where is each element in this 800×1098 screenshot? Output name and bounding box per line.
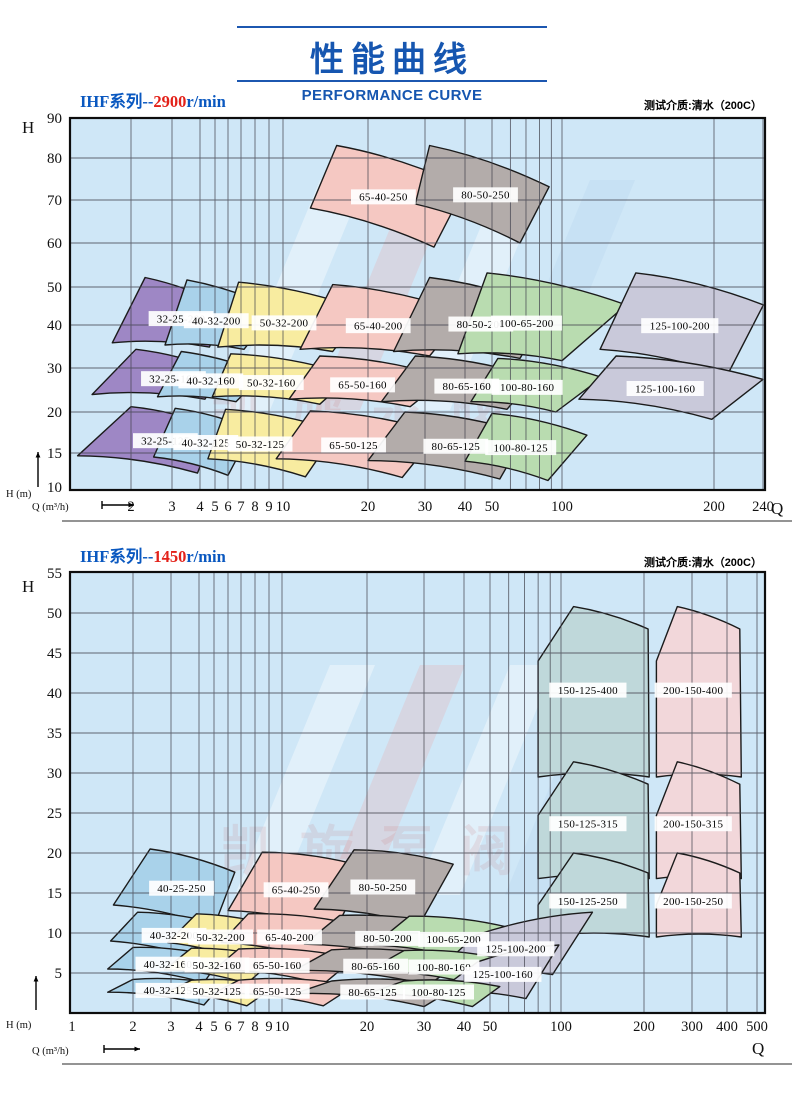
y-tick-label: 45 bbox=[47, 646, 62, 662]
series-prefix: IHF系列-- bbox=[80, 547, 153, 566]
test-medium-note: 测试介质:清水（200C） bbox=[460, 554, 762, 570]
region-label: 50-32-160 bbox=[247, 377, 296, 389]
x-tick-label: 400 bbox=[716, 1019, 738, 1035]
region-label: 100-80-160 bbox=[500, 382, 555, 394]
y-tick-label: 50 bbox=[47, 280, 62, 296]
y-tick-label: 30 bbox=[47, 766, 62, 782]
series-label-1450: IHF系列--1450r/min bbox=[80, 543, 226, 567]
x-tick-label: 40 bbox=[457, 1019, 472, 1035]
x-tick-label: 500 bbox=[746, 1019, 768, 1035]
region-label: 200-150-400 bbox=[663, 685, 723, 697]
region-label: 150-125-250 bbox=[558, 896, 618, 908]
x-tick-label: 30 bbox=[417, 1019, 432, 1035]
x-tick-label: 5 bbox=[211, 499, 218, 515]
y-tick-label: 35 bbox=[47, 726, 62, 742]
region-label: 125-100-160 bbox=[473, 969, 533, 981]
region-label: 80-50-200 bbox=[363, 933, 412, 945]
test-medium-note: 测试介质:清水（200C） bbox=[460, 97, 762, 113]
region-label: 125-100-200 bbox=[486, 944, 546, 956]
x-tick-label: 3 bbox=[167, 1019, 174, 1035]
region-label: 40-25-250 bbox=[157, 883, 206, 895]
x-tick-label: 40 bbox=[458, 499, 473, 515]
region-label: 125-100-160 bbox=[635, 383, 695, 395]
y-tick-label: 20 bbox=[47, 846, 62, 862]
x-tick-label: 10 bbox=[275, 1019, 290, 1035]
region-label: 100-80-160 bbox=[417, 962, 472, 974]
x-tick-label: 200 bbox=[633, 1019, 655, 1035]
region-label: 50-32-200 bbox=[260, 318, 309, 330]
page-title: 性能曲线 bbox=[237, 32, 547, 81]
x-axis-unit: Q (m³/h) bbox=[32, 502, 69, 513]
region-label: 150-125-400 bbox=[558, 685, 618, 697]
region-label: 65-40-250 bbox=[359, 192, 408, 204]
region-label: 65-40-200 bbox=[265, 932, 314, 944]
series-speed-unit: r/min bbox=[186, 92, 225, 111]
region-label: 65-50-160 bbox=[338, 380, 387, 392]
y-tick-label: 90 bbox=[47, 111, 62, 127]
x-tick-label: 4 bbox=[196, 499, 204, 515]
region-label: 65-50-160 bbox=[253, 960, 302, 972]
y-tick-label: 15 bbox=[47, 446, 62, 462]
x-tick-label: 200 bbox=[703, 499, 725, 515]
x-tick-label: 100 bbox=[550, 1019, 572, 1035]
x-axis-label: Q bbox=[771, 499, 783, 518]
y-tick-label: 25 bbox=[47, 806, 62, 822]
y-tick-label: 50 bbox=[47, 606, 62, 622]
region-label: 80-65-125 bbox=[432, 441, 481, 453]
x-tick-label: 2 bbox=[127, 499, 134, 515]
performance-chart-1450: 凯旋泵阀150-125-400200-150-400150-125-315200… bbox=[0, 540, 800, 1098]
y-tick-label: 55 bbox=[47, 566, 62, 582]
x-tick-label: 9 bbox=[265, 1019, 272, 1035]
x-tick-label: 7 bbox=[237, 1019, 244, 1035]
region-label: 100-80-125 bbox=[411, 987, 466, 999]
region-label: 100-65-200 bbox=[499, 318, 554, 330]
x-tick-label: 100 bbox=[551, 499, 573, 515]
series-speed: 1450 bbox=[153, 547, 186, 566]
series-speed: 2900 bbox=[153, 92, 186, 111]
y-axis-unit: H (m) bbox=[6, 1020, 32, 1031]
axis-arrow-head bbox=[36, 452, 41, 458]
region-label: 80-65-125 bbox=[348, 987, 397, 999]
x-tick-label: 300 bbox=[681, 1019, 703, 1035]
y-tick-label: 20 bbox=[47, 405, 62, 421]
y-tick-label: 10 bbox=[47, 480, 62, 496]
series-prefix: IHF系列-- bbox=[80, 92, 153, 111]
title-rule-bottom bbox=[237, 80, 547, 82]
x-tick-label: 7 bbox=[237, 499, 244, 515]
x-tick-label: 8 bbox=[251, 1019, 258, 1035]
x-tick-label: 6 bbox=[224, 499, 231, 515]
x-tick-label: 10 bbox=[276, 499, 291, 515]
region-label: 80-65-160 bbox=[351, 961, 400, 973]
y-tick-label: 10 bbox=[47, 926, 62, 942]
y-tick-label: 15 bbox=[47, 886, 62, 902]
x-tick-label: 50 bbox=[485, 499, 500, 515]
region-label: 65-40-250 bbox=[272, 885, 321, 897]
y-axis-unit: H (m) bbox=[6, 489, 32, 500]
region-label: 65-40-200 bbox=[354, 320, 403, 332]
title-rule-top bbox=[237, 26, 547, 28]
y-axis-label: H bbox=[22, 577, 34, 596]
x-tick-label: 6 bbox=[224, 1019, 231, 1035]
axis-arrow-head bbox=[34, 976, 39, 982]
page: 凯旋泵阀65-40-25080-50-25032-25-20040-32-200… bbox=[0, 0, 800, 1098]
region-label: 50-32-125 bbox=[193, 986, 242, 998]
series-speed-unit: r/min bbox=[186, 547, 225, 566]
x-tick-label: 9 bbox=[265, 499, 272, 515]
axis-arrow-head bbox=[135, 1047, 141, 1052]
region-label: 80-65-160 bbox=[443, 381, 492, 393]
region-label: 200-150-250 bbox=[663, 896, 723, 908]
region-label: 150-125-315 bbox=[558, 819, 618, 831]
region-label: 65-50-125 bbox=[329, 440, 378, 452]
x-tick-label: 50 bbox=[483, 1019, 498, 1035]
region-label: 80-50-250 bbox=[359, 882, 408, 894]
region-label: 50-32-125 bbox=[236, 439, 285, 451]
region-label: 100-65-200 bbox=[427, 934, 482, 946]
x-tick-label: 3 bbox=[168, 499, 175, 515]
region-label: 50-32-160 bbox=[193, 960, 242, 972]
x-tick-label: 8 bbox=[251, 499, 258, 515]
region-label: 80-50-250 bbox=[461, 190, 510, 202]
x-axis-label: Q bbox=[752, 1039, 764, 1058]
y-tick-label: 80 bbox=[47, 151, 62, 167]
region-label: 125-100-200 bbox=[650, 320, 710, 332]
y-tick-label: 40 bbox=[47, 318, 62, 334]
y-tick-label: 70 bbox=[47, 193, 62, 209]
y-axis-label: H bbox=[22, 118, 34, 137]
x-tick-label: 4 bbox=[195, 1019, 203, 1035]
region-label: 65-50-125 bbox=[253, 986, 302, 998]
region-label: 40-32-200 bbox=[192, 316, 241, 328]
y-tick-label: 5 bbox=[55, 966, 63, 982]
region-label: 40-32-125 bbox=[182, 437, 231, 449]
y-tick-label: 30 bbox=[47, 361, 62, 377]
x-tick-label: 30 bbox=[418, 499, 433, 515]
region-label: 100-80-125 bbox=[494, 442, 549, 454]
x-tick-label: 1 bbox=[68, 1019, 75, 1035]
x-tick-label: 20 bbox=[360, 1019, 375, 1035]
region-label: 40-32-160 bbox=[187, 376, 236, 388]
y-tick-label: 40 bbox=[47, 686, 62, 702]
region-label: 50-32-200 bbox=[196, 932, 245, 944]
x-tick-label: 5 bbox=[210, 1019, 217, 1035]
x-tick-label: 20 bbox=[361, 499, 376, 515]
x-axis-unit: Q (m³/h) bbox=[32, 1046, 69, 1057]
y-tick-label: 60 bbox=[47, 236, 62, 252]
region-label: 200-150-315 bbox=[663, 819, 723, 831]
x-tick-label: 2 bbox=[129, 1019, 136, 1035]
series-label-2900: IHF系列--2900r/min bbox=[80, 88, 226, 112]
